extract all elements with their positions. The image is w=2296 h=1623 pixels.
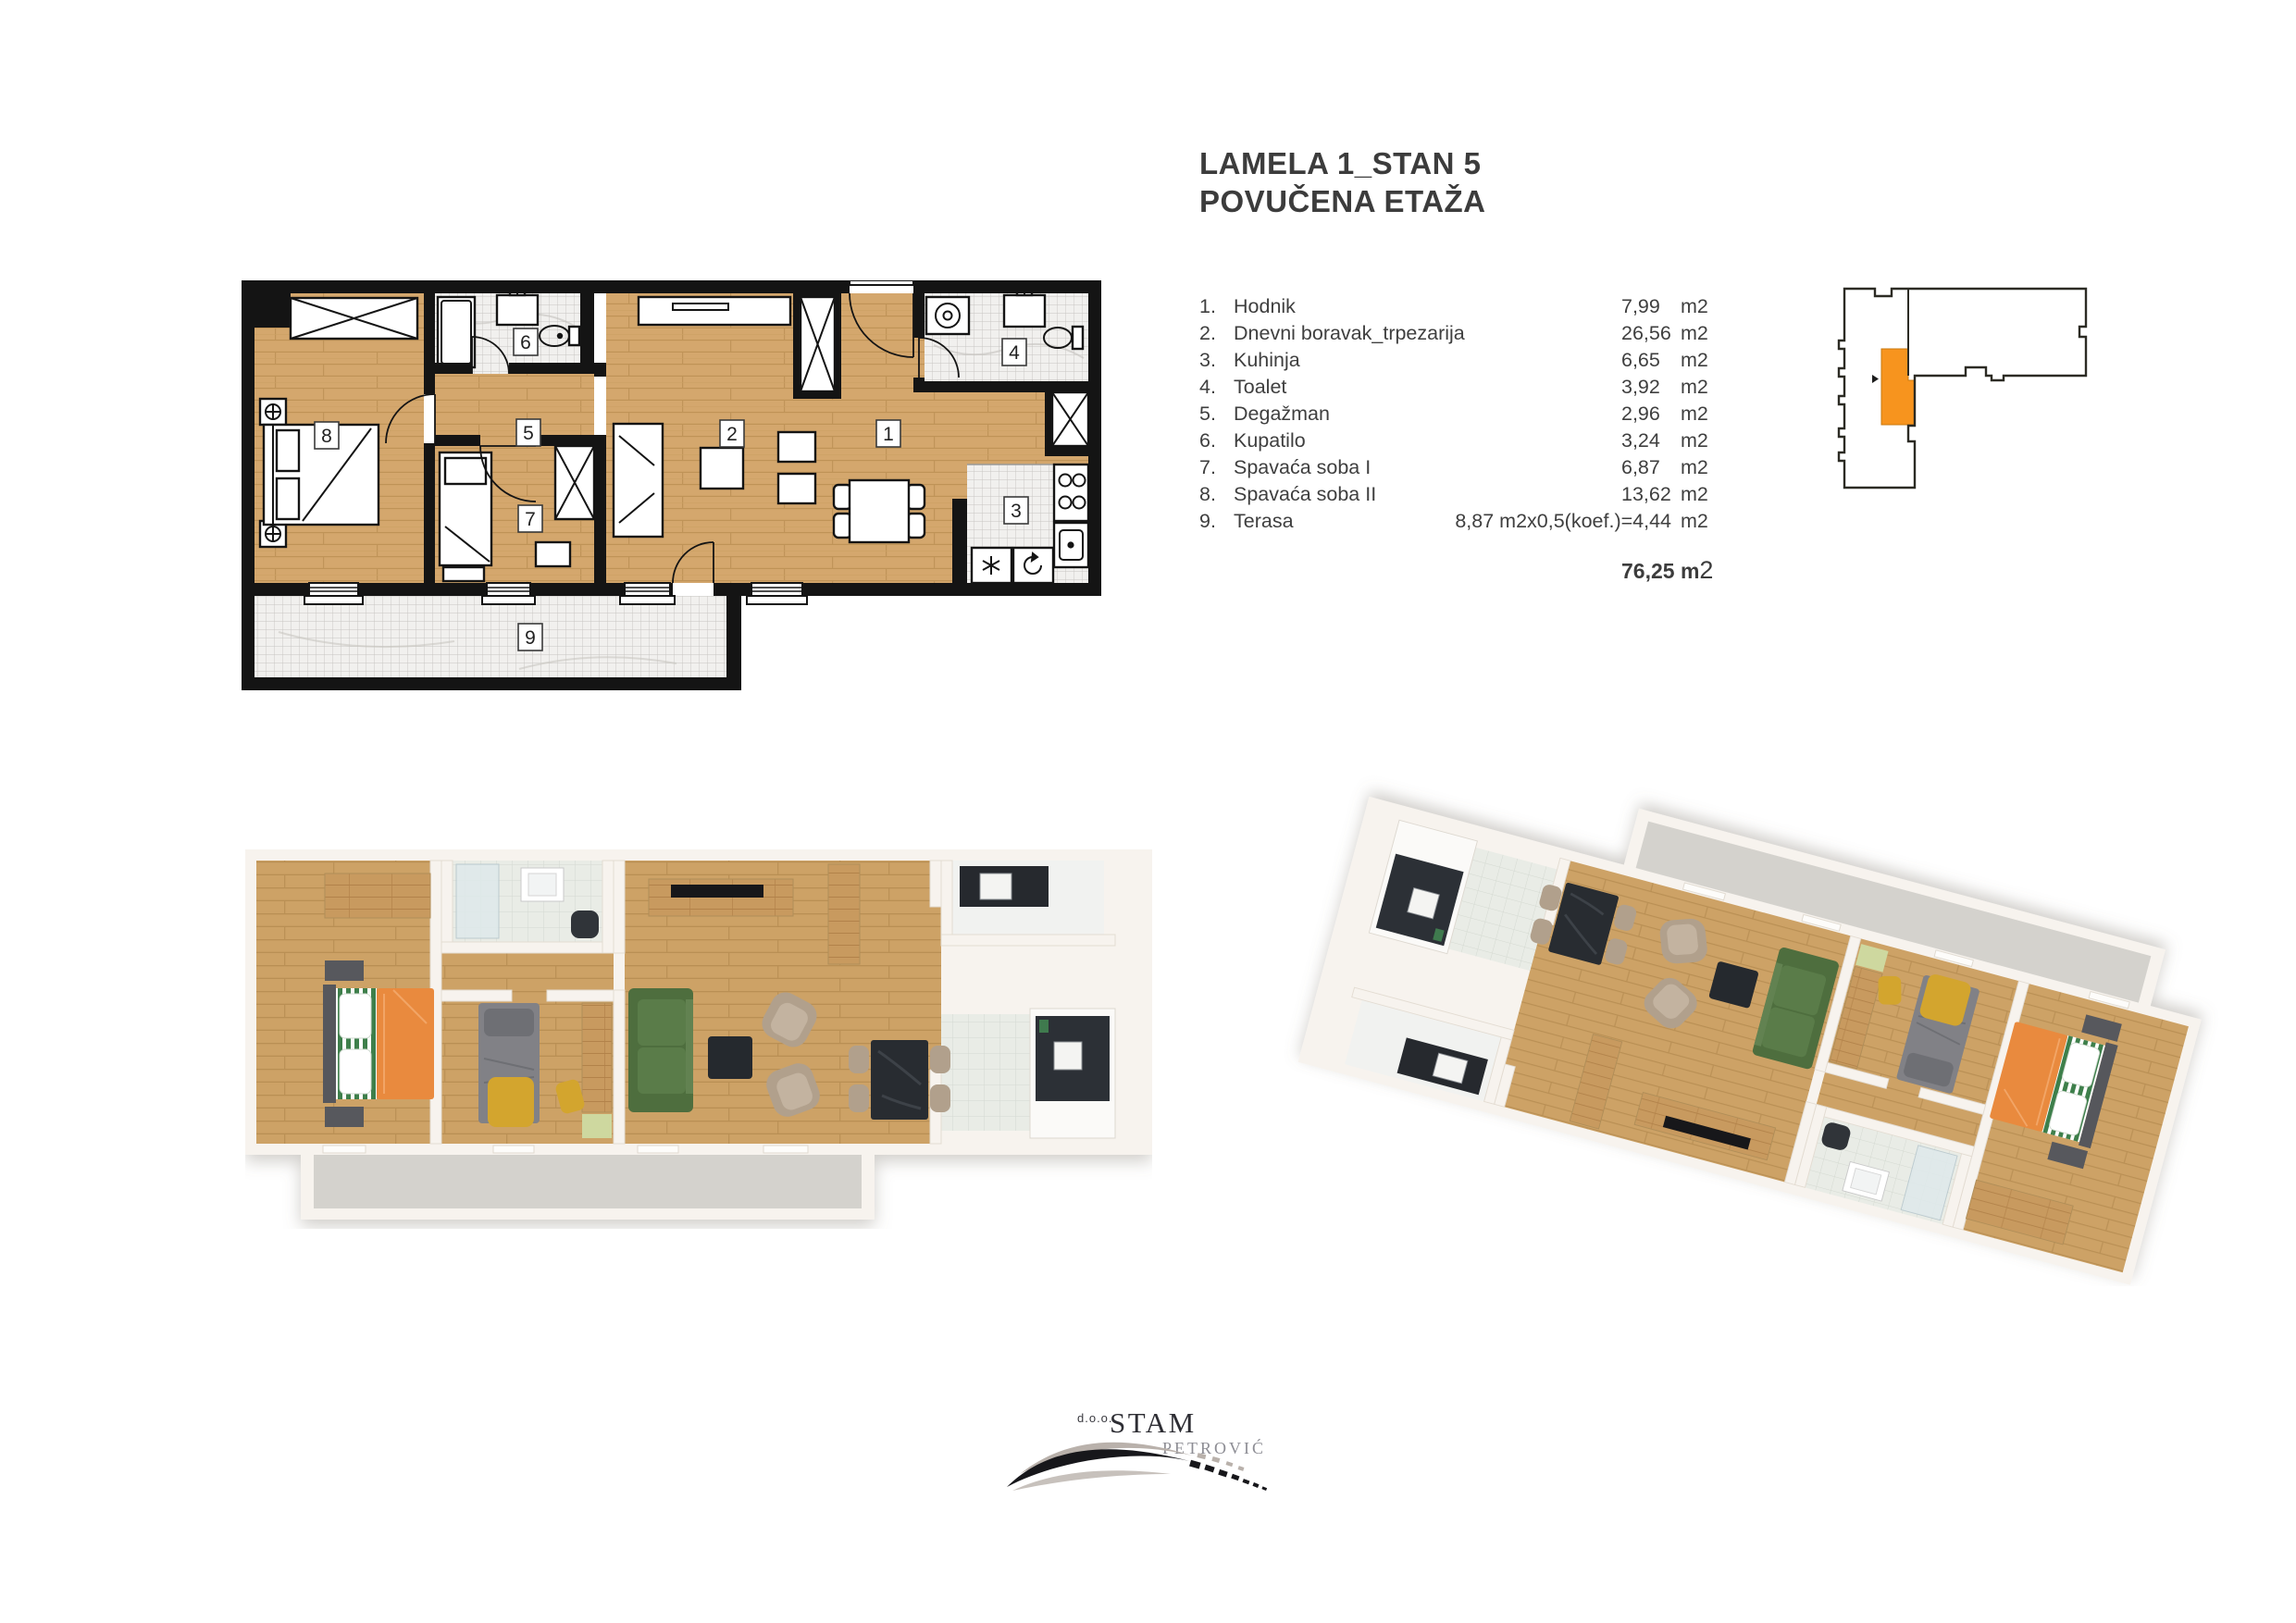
sink4-icon [1004, 295, 1045, 327]
row-name: Spavaća soba II [1234, 481, 1621, 508]
plan-title: LAMELA 1_STAN 5 POVUČENA ETAŽA [1199, 144, 1486, 220]
total-sup: 2 [1699, 556, 1713, 584]
floorplan-sheet: 1 2 3 4 5 6 7 8 9 LAMELA 1_STAN 5 POVUČE… [0, 0, 2296, 1623]
row-num: 4. [1199, 374, 1234, 401]
row-name: Spavaća soba I [1234, 454, 1621, 481]
room-list-row: 8. Spavaća soba II 13,62 m2 [1199, 481, 1723, 508]
coffee-table-icon [701, 448, 743, 489]
row-name: Hodnik [1234, 293, 1621, 320]
row-name: Terasa [1234, 508, 1382, 535]
room-label-8: 8 [321, 426, 332, 447]
sofa-icon [614, 424, 663, 537]
position-arrow-icon [1872, 375, 1879, 383]
room-label-4: 4 [1009, 342, 1020, 364]
row-num: 3. [1199, 347, 1234, 374]
room-list: 1. Hodnik 7,99 m2 2. Dnevni boravak_trpe… [1199, 293, 1723, 535]
row-unit: m2 [1681, 401, 1723, 427]
room-list-row: 1. Hodnik 7,99 m2 [1199, 293, 1723, 320]
row-unit: m2 [1681, 320, 1723, 347]
row-value: 26,56 [1621, 320, 1681, 347]
armchair-icon [778, 474, 815, 503]
room-label-6: 6 [520, 332, 531, 353]
room-list-row: 2. Dnevni boravak_trpezarija 26,56 m2 [1199, 320, 1723, 347]
row-unit: m2 [1681, 454, 1723, 481]
row-value: 3,92 [1621, 374, 1681, 401]
stove-icon [1054, 465, 1088, 521]
row-value: 7,99 [1621, 293, 1681, 320]
row-num: 6. [1199, 427, 1234, 454]
row-value: 2,96 [1621, 401, 1681, 427]
room-label-9: 9 [525, 627, 536, 649]
title-line-1: LAMELA 1_STAN 5 [1199, 144, 1486, 182]
armchair-icon [778, 432, 815, 462]
row-num: 8. [1199, 481, 1234, 508]
row-num: 9. [1199, 508, 1234, 535]
dining-table-icon [850, 480, 909, 542]
render-3d-perspective [1268, 731, 2249, 1286]
row-value: 13,62 [1621, 481, 1681, 508]
room-label-3: 3 [1011, 501, 1022, 522]
floor-plan-2d: 1 2 3 4 5 6 7 8 9 [242, 280, 1101, 690]
room-label-5: 5 [523, 423, 534, 444]
row-name: Degažman [1234, 401, 1621, 427]
row-name: Dnevni boravak_trpezarija [1234, 320, 1621, 347]
room-list-row: 7. Spavaća soba I 6,87 m2 [1199, 454, 1723, 481]
total-value: 76,25 m [1621, 559, 1699, 583]
row-name: Toalet [1234, 374, 1621, 401]
title-line-2: POVUČENA ETAŽA [1199, 182, 1486, 220]
row-unit: m2 [1681, 347, 1723, 374]
row-value: 6,65 [1621, 347, 1681, 374]
building-outline [1839, 289, 2086, 488]
row-unit: m2 [1681, 427, 1723, 454]
room-label-1: 1 [883, 424, 894, 445]
row-num: 5. [1199, 401, 1234, 427]
row-unit: m2 [1681, 481, 1723, 508]
row-formula: 8,87 m2x0,5(koef.)=4,44 [1382, 508, 1681, 535]
total-area: 76,25 m2 [1621, 556, 1713, 585]
row-num: 7. [1199, 454, 1234, 481]
row-name: Kupatilo [1234, 427, 1621, 454]
row-unit: m2 [1681, 508, 1723, 535]
room-list-row: 6. Kupatilo 3,24 m2 [1199, 427, 1723, 454]
row-value: 3,24 [1621, 427, 1681, 454]
company-logo: d.o.o. STAM PETROVIĆ [999, 1393, 1277, 1513]
room-list-row-terrace: 9. Terasa 8,87 m2x0,5(koef.)=4,44 m2 [1199, 508, 1723, 535]
shower-icon [438, 297, 475, 367]
row-num: 1. [1199, 293, 1234, 320]
row-unit: m2 [1681, 293, 1723, 320]
terrace-tiles [254, 596, 726, 677]
room-list-row: 3. Kuhinja 6,65 m2 [1199, 347, 1723, 374]
room-list-row: 4. Toalet 3,92 m2 [1199, 374, 1723, 401]
sink6-icon [497, 295, 538, 325]
row-name: Kuhinja [1234, 347, 1621, 374]
logo-prefix: d.o.o. [1077, 1411, 1113, 1425]
unit-position-highlight [1881, 349, 1915, 425]
row-num: 2. [1199, 320, 1234, 347]
row-value: 6,87 [1621, 454, 1681, 481]
room-label-2: 2 [726, 424, 738, 445]
building-position-diagram [1837, 282, 2089, 493]
room-list-row: 5. Degažman 2,96 m2 [1199, 401, 1723, 427]
room-label-7: 7 [525, 509, 536, 530]
logo-subtitle: PETROVIĆ [1162, 1438, 1266, 1457]
render-3d-top [245, 849, 1152, 1229]
logo-name: STAM [1110, 1406, 1197, 1439]
row-unit: m2 [1681, 374, 1723, 401]
